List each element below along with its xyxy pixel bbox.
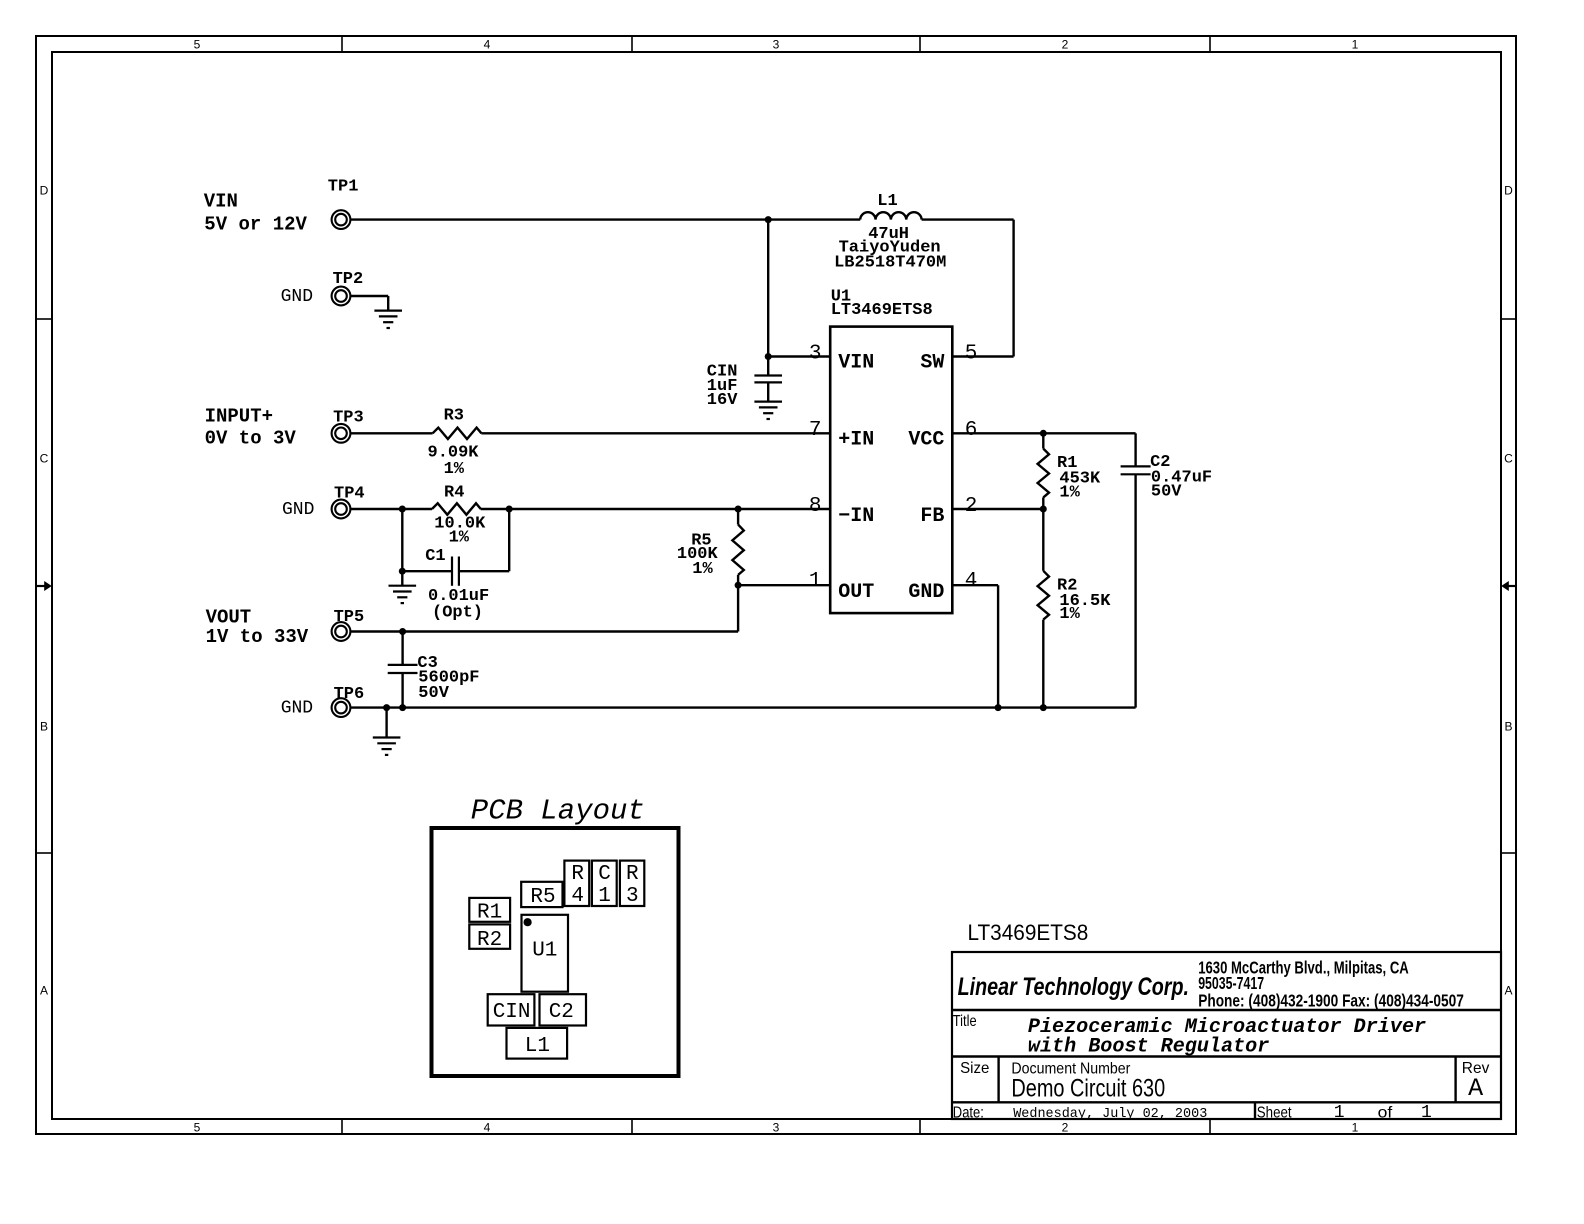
svg-text:1%: 1% <box>1059 483 1080 502</box>
svg-text:1%: 1% <box>444 460 465 479</box>
svg-text:TP2: TP2 <box>333 270 364 289</box>
svg-text:1: 1 <box>1352 38 1359 52</box>
svg-text:C: C <box>1504 452 1513 466</box>
svg-text:4: 4 <box>484 38 491 52</box>
svg-text:16V: 16V <box>707 391 738 410</box>
svg-text:Phone: (408)432-1900 Fax: (408: Phone: (408)432-1900 Fax: (408)434-0507 <box>1198 991 1464 1011</box>
svg-text:4: 4 <box>965 570 978 593</box>
svg-text:A: A <box>1468 1074 1483 1103</box>
svg-text:3: 3 <box>809 342 822 365</box>
svg-text:5: 5 <box>194 1121 201 1135</box>
svg-text:L1: L1 <box>525 1035 550 1058</box>
svg-text:50V: 50V <box>1151 483 1182 502</box>
svg-text:4: 4 <box>571 885 584 908</box>
svg-text:B: B <box>1504 720 1512 734</box>
svg-text:of: of <box>1378 1105 1393 1122</box>
svg-text:VCC: VCC <box>908 428 944 451</box>
svg-text:SW: SW <box>920 352 944 375</box>
svg-text:D: D <box>1504 184 1513 198</box>
svg-text:(Opt): (Opt) <box>432 603 483 622</box>
svg-text:GND: GND <box>908 581 944 604</box>
svg-text:Date:: Date: <box>953 1105 984 1122</box>
svg-text:1: 1 <box>1421 1103 1432 1123</box>
svg-text:with Boost Regulator: with Boost Regulator <box>1028 1036 1269 1059</box>
svg-text:VIN: VIN <box>204 191 238 213</box>
svg-text:1: 1 <box>598 885 611 908</box>
svg-text:+IN: +IN <box>838 428 874 451</box>
svg-text:3: 3 <box>773 38 780 52</box>
svg-text:−IN: −IN <box>838 505 874 528</box>
svg-text:L1: L1 <box>877 192 897 211</box>
svg-text:R3: R3 <box>444 406 464 425</box>
svg-text:R1: R1 <box>477 902 502 925</box>
svg-text:Linear Technology Corp.: Linear Technology Corp. <box>958 973 1189 1001</box>
svg-text:VIN: VIN <box>838 352 874 375</box>
svg-text:D: D <box>40 184 49 198</box>
svg-text:GND: GND <box>281 699 313 719</box>
svg-text:4: 4 <box>484 1121 491 1135</box>
svg-text:50V: 50V <box>418 684 449 703</box>
svg-text:2: 2 <box>1062 38 1069 52</box>
svg-text:R4: R4 <box>444 484 464 503</box>
svg-text:5: 5 <box>194 38 201 52</box>
svg-text:1: 1 <box>1334 1103 1345 1123</box>
svg-text:TP1: TP1 <box>328 177 359 196</box>
svg-text:R: R <box>571 863 584 886</box>
svg-text:6: 6 <box>965 419 978 442</box>
svg-text:TP4: TP4 <box>334 484 365 503</box>
svg-text:C: C <box>598 863 611 886</box>
svg-text:Size: Size <box>960 1060 989 1077</box>
svg-text:8: 8 <box>809 495 822 518</box>
svg-text:A: A <box>1504 984 1512 998</box>
svg-text:3: 3 <box>626 885 639 908</box>
svg-text:1: 1 <box>809 570 822 593</box>
svg-text:R5: R5 <box>530 886 555 909</box>
svg-text:TP5: TP5 <box>334 608 365 627</box>
svg-text:C1: C1 <box>425 547 445 566</box>
svg-text:0V to 3V: 0V to 3V <box>205 427 297 449</box>
svg-text:2: 2 <box>965 495 978 518</box>
svg-text:1: 1 <box>1352 1121 1359 1135</box>
svg-text:R: R <box>626 863 639 886</box>
svg-text:3: 3 <box>773 1121 780 1135</box>
svg-text:Sheet: Sheet <box>1257 1105 1292 1122</box>
svg-text:1%: 1% <box>1059 605 1080 624</box>
svg-text:Wednesday, July 02, 2003: Wednesday, July 02, 2003 <box>1013 1106 1207 1122</box>
svg-text:Title: Title <box>953 1013 977 1030</box>
svg-text:A: A <box>40 984 48 998</box>
svg-text:CIN: CIN <box>493 1001 531 1024</box>
svg-text:PCB Layout: PCB Layout <box>471 795 645 828</box>
svg-text:B: B <box>40 720 48 734</box>
svg-text:Demo Circuit 630: Demo Circuit 630 <box>1011 1075 1165 1103</box>
svg-text:FB: FB <box>920 505 944 528</box>
svg-text:C: C <box>40 452 49 466</box>
svg-text:U1: U1 <box>532 939 557 962</box>
svg-text:GND: GND <box>282 500 314 520</box>
svg-text:2: 2 <box>1062 1121 1069 1135</box>
svg-text:LT3469ETS8: LT3469ETS8 <box>968 920 1089 945</box>
svg-text:LT3469ETS8: LT3469ETS8 <box>831 301 933 320</box>
svg-text:GND: GND <box>281 287 313 307</box>
svg-text:TP6: TP6 <box>334 685 365 704</box>
svg-text:OUT: OUT <box>838 581 874 604</box>
svg-text:5V or 12V: 5V or 12V <box>204 213 307 235</box>
svg-text:1%: 1% <box>692 560 713 579</box>
svg-text:R2: R2 <box>477 929 502 952</box>
svg-text:7: 7 <box>809 419 822 442</box>
svg-text:1%: 1% <box>449 529 470 548</box>
svg-text:TP3: TP3 <box>333 409 364 428</box>
svg-text:LB2518T470M: LB2518T470M <box>834 253 946 272</box>
svg-text:1V to 33V: 1V to 33V <box>206 626 309 648</box>
svg-text:5: 5 <box>965 342 978 365</box>
svg-text:INPUT+: INPUT+ <box>205 406 273 428</box>
svg-text:C2: C2 <box>549 1001 574 1024</box>
